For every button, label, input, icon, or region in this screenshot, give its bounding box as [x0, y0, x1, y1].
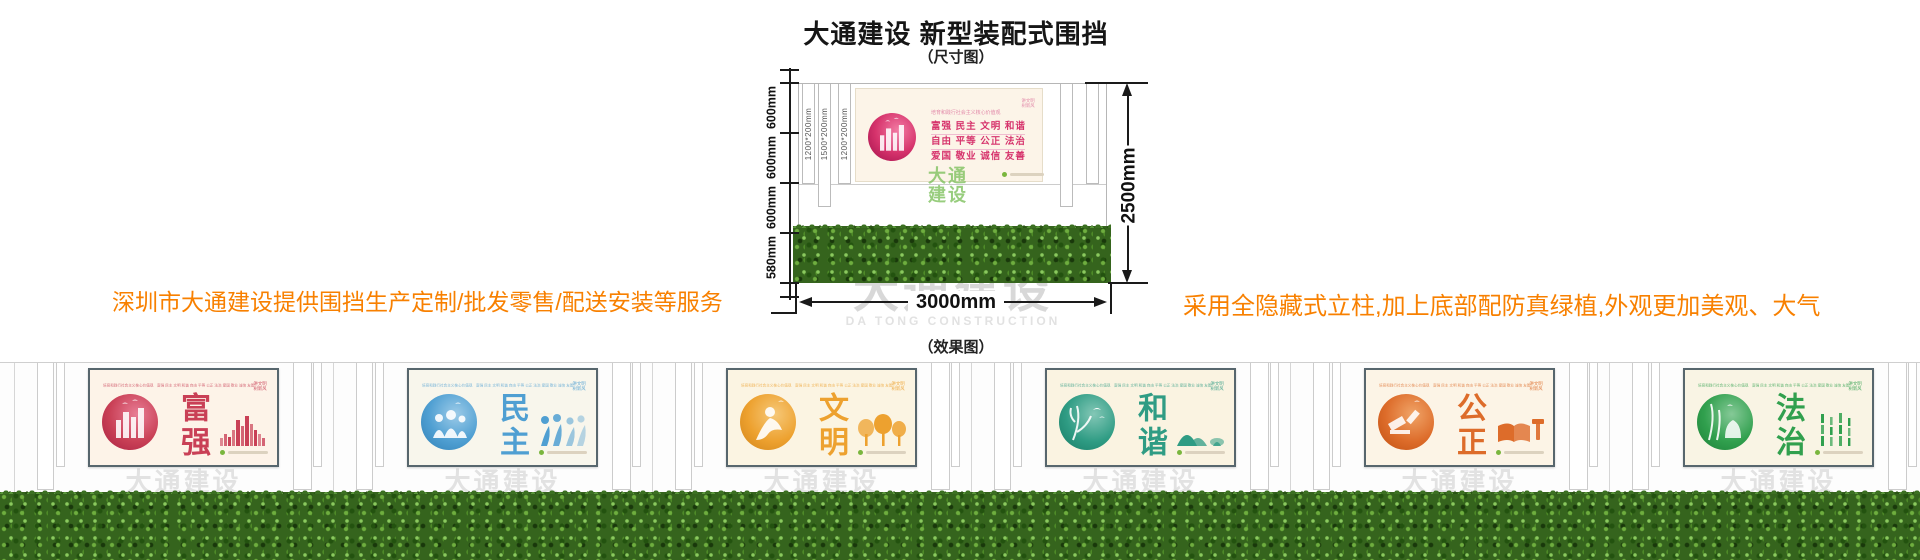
papercut-circle-icon [1378, 394, 1434, 450]
dimension-chain-line [789, 68, 791, 300]
fence-slat [951, 363, 960, 467]
dim-tick [780, 132, 799, 134]
fence-slat [1651, 363, 1660, 467]
panel-footnote [1496, 450, 1544, 455]
bamboo-icon [1813, 412, 1865, 446]
watermark-green: 大通建设 [927, 167, 969, 205]
fence-slat [293, 363, 312, 490]
fence-slat [1632, 363, 1649, 490]
value-panel-fuqiang: 培育和践行社会主义核心价值观 富强 民主 文明 和谐 自由 平等 公正 法治 爱… [88, 368, 279, 467]
dim-tick [780, 69, 799, 71]
papercut-circle-icon [740, 394, 796, 450]
corner-slogan: 讲文明树新风 [248, 381, 272, 391]
panel-footnote [1815, 450, 1863, 455]
extension-line [1108, 282, 1148, 284]
dim-label-600: 600mm [766, 80, 779, 136]
fence-product-poster: 大通建设 新型装配式围挡 （尺寸图） 深圳市大通建设提供围挡生产定制/批发零售/… [0, 0, 1920, 560]
fence-slat [994, 363, 1011, 490]
hedge-strip [793, 226, 1111, 283]
feature-annotation: 采用全隐藏式立柱,加上底部配防真绿植,外观更加美观、大气 [1183, 286, 1820, 321]
fence-slat [632, 363, 641, 467]
effect-view-label: （效果图） [0, 336, 1912, 357]
values-row: 爱国 敬业 诚信 友善 [931, 150, 1025, 164]
green-dot-icon [1002, 172, 1007, 177]
green-dot-icon [539, 450, 544, 455]
footnote-text-bar [1010, 173, 1044, 176]
watermark-en: DA TONG CONSTRUCTION [798, 314, 1108, 328]
papercut-circle-icon [1697, 394, 1753, 450]
panel-slogan-row: 培育和践行社会主义核心价值观 富强 民主 文明 和谐 自由 平等 公正 法治 爱… [1060, 383, 1182, 388]
fence-slat [313, 363, 322, 467]
fence-slat [1313, 363, 1330, 490]
fence-slat [356, 363, 373, 490]
sign-footnote [1002, 172, 1044, 177]
extension-line [1085, 82, 1148, 84]
panel-slogan-row: 培育和践行社会主义核心价值观 富强 民主 文明 和谐 自由 平等 公正 法治 爱… [741, 383, 863, 388]
fence-slat [612, 363, 631, 490]
dim-tick [780, 232, 799, 234]
panel-slogan-row: 培育和践行社会主义核心价值观 富强 民主 文明 和谐 自由 平等 公正 法治 爱… [422, 383, 544, 388]
people-icon [537, 412, 589, 446]
corner-slogan: 讲文明树新风 [1016, 98, 1040, 108]
dim-tick [780, 182, 799, 184]
panel-word: 民主 [493, 392, 529, 468]
sign-slogan: 培育和践行社会主义核心价值观 [931, 109, 1000, 116]
footnote-text-bar [1823, 451, 1863, 454]
value-panel-hexie: 培育和践行社会主义核心价值观 富强 民主 文明 和谐 自由 平等 公正 法治 爱… [1045, 368, 1236, 467]
footnote-text-bar [547, 451, 587, 454]
total-height-label: 2500mm [1120, 146, 1139, 226]
hedge-strip [0, 492, 1920, 560]
papercut-circle-icon [868, 113, 916, 161]
value-panel-wenming: 培育和践行社会主义核心价值观 富强 民主 文明 和谐 自由 平等 公正 法治 爱… [726, 368, 917, 467]
corner-slogan: 讲文明树新风 [1524, 381, 1548, 391]
panel-footnote [858, 450, 906, 455]
panel-footnote [1177, 450, 1225, 455]
fence-slat [1888, 363, 1907, 490]
arrow-right-icon [1094, 297, 1107, 307]
fence-slat [37, 363, 54, 490]
value-panel-fazhi: 培育和践行社会主义核心价值观 富强 民主 文明 和谐 自由 平等 公正 法治 爱… [1683, 368, 1874, 467]
value-panel-gongzheng: 培育和践行社会主义核心价值观 富强 民主 文明 和谐 自由 平等 公正 法治 爱… [1364, 368, 1555, 467]
dim-tick [780, 82, 799, 84]
arrow-left-icon [799, 297, 812, 307]
total-width-label: 3000mm [908, 291, 1004, 314]
panel-slogan-row: 培育和践行社会主义核心价值观 富强 民主 文明 和谐 自由 平等 公正 法治 爱… [103, 383, 225, 388]
papercut-circle-icon [102, 394, 158, 450]
slat-size-label: 1500*200mm [819, 99, 831, 169]
core-values-rows: 富强 民主 文明 和谐 自由 平等 公正 法治 爱国 敬业 诚信 友善 [931, 120, 1025, 164]
size-view-label: （尺寸图） [0, 46, 1912, 67]
service-annotation: 深圳市大通建设提供围挡生产定制/批发零售/配送安装等服务 [112, 283, 723, 317]
fence-slat [1013, 363, 1022, 467]
panel-word: 公正 [1450, 392, 1486, 468]
values-row: 富强 民主 文明 和谐 [931, 120, 1025, 135]
slat-size-label: 1200*200mm [839, 99, 851, 169]
fence-slat [1270, 363, 1279, 467]
panel-word: 法治 [1769, 392, 1805, 468]
slat-1200 [1086, 84, 1099, 184]
panel-slogan-row: 培育和践行社会主义核心价值观 富强 民主 文明 和谐 自由 平等 公正 法治 爱… [1379, 383, 1501, 388]
panel-word: 和谐 [1131, 392, 1167, 468]
dim-label-600: 600mm [766, 130, 779, 186]
panel-word: 富强 [174, 392, 210, 468]
corner-slogan: 讲文明树新风 [567, 381, 591, 391]
value-panel-minzhu: 培育和践行社会主义核心价值观 富强 民主 文明 和谐 自由 平等 公正 法治 爱… [407, 368, 598, 467]
panel-word: 文明 [812, 392, 848, 468]
fence-slat [1589, 363, 1598, 467]
fence-slat [1250, 363, 1269, 490]
fence-slat [675, 363, 692, 490]
footnote-text-bar [1504, 451, 1544, 454]
corner-slogan: 讲文明树新风 [1205, 381, 1229, 391]
green-dot-icon [858, 450, 863, 455]
fence-slat [375, 363, 384, 467]
extension-line [771, 312, 796, 314]
footnote-text-bar [228, 451, 268, 454]
corner-slogan: 讲文明树新风 [1843, 381, 1867, 391]
fence-slat [1332, 363, 1341, 467]
panel-footnote [539, 450, 587, 455]
papercut-circle-icon [421, 394, 477, 450]
panel-footnote [220, 450, 268, 455]
slat-1500 [1060, 84, 1073, 207]
fence-slat [931, 363, 950, 490]
panel-slogan-row: 培育和践行社会主义核心价值观 富强 民主 文明 和谐 自由 平等 公正 法治 爱… [1698, 383, 1820, 388]
footnote-text-bar [866, 451, 906, 454]
green-dot-icon [1496, 450, 1501, 455]
dim-label-600: 600mm [766, 180, 779, 236]
dim-label-580: 580mm [766, 230, 779, 286]
fence-slat [56, 363, 65, 467]
hills-icon [1175, 412, 1227, 446]
extension-line [1110, 283, 1112, 314]
extension-line [795, 283, 797, 314]
trees-icon [856, 412, 908, 446]
fence-slat [1569, 363, 1588, 490]
corner-slogan: 讲文明树新风 [886, 381, 910, 391]
values-row: 自由 平等 公正 法治 [931, 135, 1025, 150]
fence-slat [694, 363, 703, 467]
green-dot-icon [1177, 450, 1182, 455]
papercut-circle-icon [1059, 394, 1115, 450]
city-skyline-icon [218, 412, 270, 446]
arrow-up-icon [1122, 83, 1132, 96]
green-dot-icon [1815, 450, 1820, 455]
fence-slat [1908, 363, 1917, 467]
book-gavel-icon [1494, 412, 1546, 446]
slat-size-label: 1200*200mm [803, 99, 815, 169]
footnote-text-bar [1185, 451, 1225, 454]
green-dot-icon [220, 450, 225, 455]
